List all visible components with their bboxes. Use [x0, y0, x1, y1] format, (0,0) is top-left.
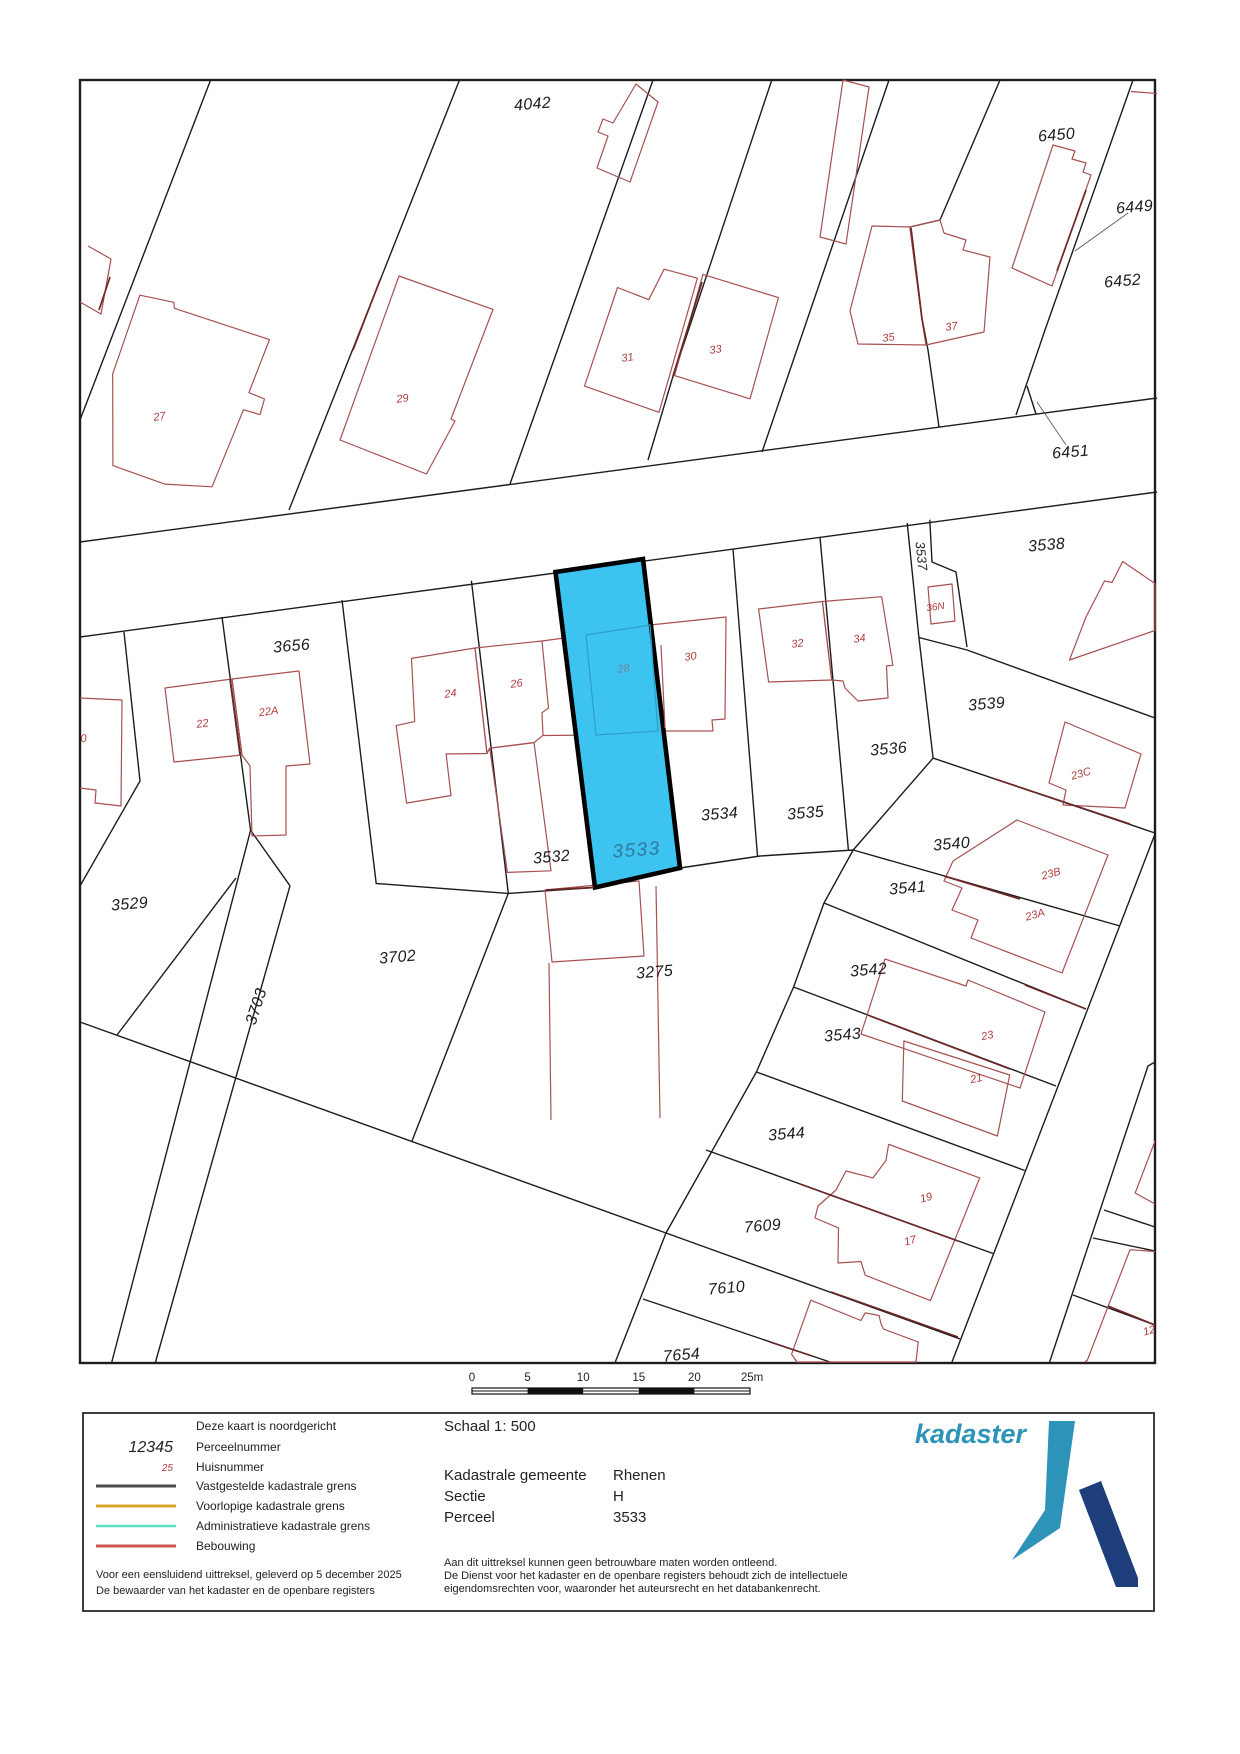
svg-text:Kadastrale gemeente: Kadastrale gemeente — [444, 1467, 587, 1484]
svg-text:31: 31 — [621, 351, 635, 365]
svg-text:Aan dit uittreksel kunnen geen: Aan dit uittreksel kunnen geen betrouwba… — [444, 1557, 777, 1569]
svg-text:3542: 3542 — [849, 960, 888, 980]
svg-text:3544: 3544 — [767, 1124, 806, 1144]
svg-text:3537: 3537 — [913, 541, 931, 572]
svg-text:De Dienst voor het kadaster en: De Dienst voor het kadaster en de openba… — [444, 1570, 848, 1582]
svg-text:eigendomsrechten voor, waarond: eigendomsrechten voor, waaronder het aut… — [444, 1583, 821, 1595]
svg-text:28: 28 — [616, 662, 632, 676]
svg-text:Administratieve kadastrale gre: Administratieve kadastrale grens — [196, 1519, 370, 1533]
svg-text:Bebouwing: Bebouwing — [196, 1539, 255, 1553]
svg-text:Sectie: Sectie — [444, 1488, 486, 1505]
svg-text:3702: 3702 — [378, 947, 417, 967]
svg-text:4042: 4042 — [513, 94, 552, 114]
svg-text:29: 29 — [395, 392, 410, 406]
svg-text:3538: 3538 — [1027, 535, 1066, 555]
svg-text:3534: 3534 — [700, 804, 739, 824]
svg-text:22: 22 — [195, 717, 210, 731]
svg-text:3533: 3533 — [613, 1509, 646, 1526]
svg-text:5: 5 — [524, 1372, 530, 1384]
svg-text:Perceel: Perceel — [444, 1509, 495, 1526]
svg-text:Vastgestelde kadastrale grens: Vastgestelde kadastrale grens — [196, 1479, 357, 1493]
svg-text:Schaal 1: 500: Schaal 1: 500 — [444, 1418, 536, 1435]
svg-text:3532: 3532 — [532, 847, 571, 867]
svg-text:6451: 6451 — [1051, 442, 1090, 462]
svg-text:7654: 7654 — [662, 1345, 701, 1365]
svg-text:Rhenen: Rhenen — [613, 1467, 666, 1484]
svg-text:7610: 7610 — [707, 1278, 746, 1298]
svg-text:Voorlopige kadastrale grens: Voorlopige kadastrale grens — [196, 1499, 345, 1513]
svg-text:Perceelnummer: Perceelnummer — [196, 1440, 281, 1454]
svg-text:25m: 25m — [741, 1372, 763, 1384]
svg-text:3656: 3656 — [272, 636, 311, 656]
svg-text:34: 34 — [853, 632, 867, 646]
svg-text:3535: 3535 — [786, 803, 825, 823]
svg-text:6450: 6450 — [1037, 125, 1076, 145]
svg-text:3540: 3540 — [932, 834, 971, 854]
svg-text:0: 0 — [469, 1372, 475, 1384]
svg-text:3541: 3541 — [888, 878, 927, 898]
svg-text:3533: 3533 — [612, 838, 662, 862]
svg-text:kadaster: kadaster — [915, 1419, 1028, 1449]
svg-text:H: H — [613, 1488, 624, 1505]
svg-text:12345: 12345 — [129, 1439, 174, 1456]
svg-text:7609: 7609 — [743, 1216, 782, 1236]
svg-text:32: 32 — [791, 637, 805, 651]
svg-text:26: 26 — [509, 677, 525, 691]
svg-text:27: 27 — [152, 410, 168, 424]
svg-text:3543: 3543 — [823, 1025, 862, 1045]
svg-text:6449: 6449 — [1115, 197, 1154, 217]
svg-text:3539: 3539 — [967, 694, 1006, 714]
svg-text:10: 10 — [577, 1372, 590, 1384]
svg-text:De bewaarder van het kadaster: De bewaarder van het kadaster en de open… — [96, 1585, 375, 1597]
svg-text:Huisnummer: Huisnummer — [196, 1460, 264, 1474]
svg-text:24: 24 — [443, 687, 458, 701]
svg-text:15: 15 — [632, 1372, 645, 1384]
svg-text:Voor een eensluidend uittrekse: Voor een eensluidend uittreksel, gelever… — [96, 1569, 402, 1581]
svg-text:20: 20 — [688, 1372, 701, 1384]
svg-text:25: 25 — [161, 1463, 174, 1474]
svg-text:3536: 3536 — [869, 739, 908, 759]
svg-text:6452: 6452 — [1103, 271, 1142, 291]
svg-text:3529: 3529 — [110, 894, 149, 914]
svg-text:3275: 3275 — [635, 962, 674, 982]
svg-text:Deze kaart is noordgericht: Deze kaart is noordgericht — [196, 1419, 337, 1433]
